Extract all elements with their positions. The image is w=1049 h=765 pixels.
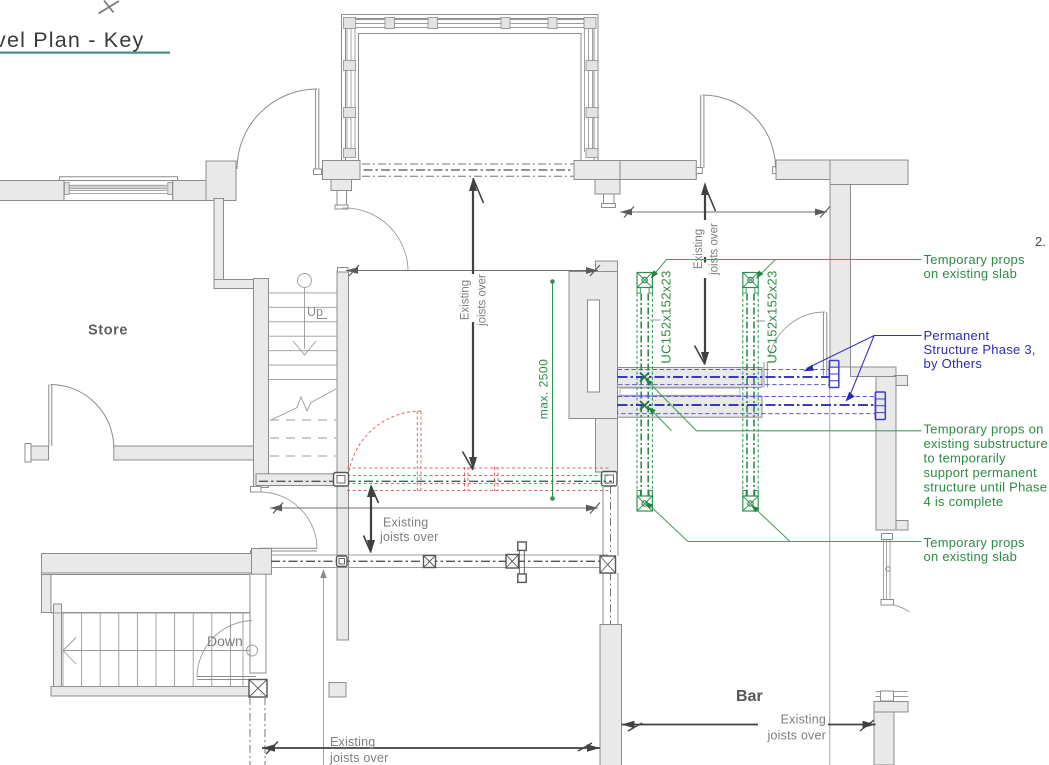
svg-text:existing substructure: existing substructure — [924, 436, 1048, 451]
svg-text:2.: 2. — [1035, 234, 1046, 249]
svg-text:on existing slab: on existing slab — [924, 549, 1018, 564]
svg-text:max. 2500: max. 2500 — [537, 359, 551, 420]
svg-text:Structure Phase 3,: Structure Phase 3, — [924, 342, 1036, 357]
svg-text:UC152x152x23: UC152x152x23 — [765, 270, 780, 363]
svg-text:structure until Phase: structure until Phase — [924, 480, 1048, 495]
svg-text:Temporary props: Temporary props — [924, 535, 1026, 550]
svg-text:vel Plan - Key: vel Plan - Key — [0, 28, 144, 52]
svg-text:to temporarily: to temporarily — [924, 451, 1006, 466]
svg-text:Temporary props on: Temporary props on — [924, 422, 1044, 437]
svg-text:UC152x152x23: UC152x152x23 — [659, 270, 674, 363]
svg-text:Bar: Bar — [736, 688, 763, 705]
svg-text:Existing: Existing — [781, 713, 826, 727]
svg-text:Store: Store — [88, 323, 128, 339]
svg-text:support permanent: support permanent — [924, 465, 1038, 480]
svg-text:by Others: by Others — [924, 356, 983, 371]
svg-text:joists over: joists over — [329, 751, 388, 765]
svg-text:Existing: Existing — [330, 735, 375, 749]
svg-text:on existing slab: on existing slab — [924, 266, 1018, 281]
svg-text:4 is complete: 4 is complete — [924, 494, 1004, 509]
svg-text:Down: Down — [207, 633, 243, 649]
svg-text:Existing: Existing — [383, 516, 428, 530]
svg-text:joists over: joists over — [379, 530, 438, 544]
svg-text:Temporary props: Temporary props — [924, 252, 1026, 267]
svg-text:joists over: joists over — [767, 729, 826, 743]
svg-text:Up: Up — [307, 305, 323, 319]
svg-text:Permanent: Permanent — [924, 328, 990, 343]
